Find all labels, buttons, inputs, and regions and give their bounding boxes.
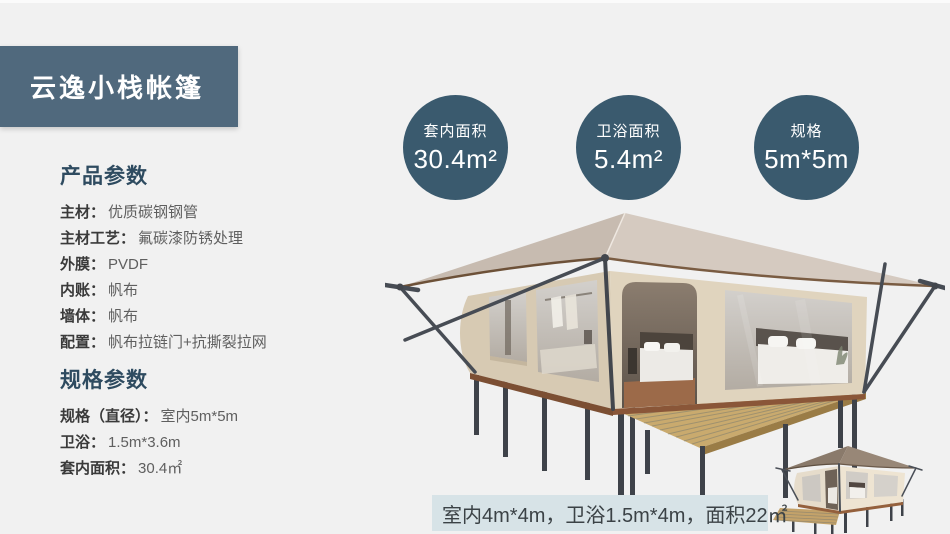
stat-circle-size: 规格 5m*5m <box>754 95 859 200</box>
param-row-material-process: 主材工艺： 氟碳漆防锈处理 <box>60 226 390 252</box>
param-value: 优质碳钢钢管 <box>108 200 198 226</box>
param-value: PVDF <box>108 252 148 278</box>
thumbnail-tent-render <box>770 424 950 534</box>
param-row-wall: 墙体： 帆布 <box>60 304 390 330</box>
product-params-heading: 产品参数 <box>60 160 390 190</box>
param-label: 内账： <box>60 278 105 304</box>
param-label: 主材工艺： <box>60 226 135 252</box>
param-label: 外膜： <box>60 252 105 278</box>
spec-label: 卫浴： <box>60 430 105 456</box>
product-params-section: 产品参数 主材： 优质碳钢钢管 主材工艺： 氟碳漆防锈处理 外膜： PVDF 内… <box>60 160 390 356</box>
spec-row-size: 规格（直径）： 室内5m*5m <box>60 404 390 430</box>
param-value: 氟碳漆防锈处理 <box>138 226 243 252</box>
stat-label: 套内面积 <box>423 120 487 141</box>
thumb-walls <box>794 466 905 514</box>
dimensions-caption: 室内4m*4m，卫浴1.5m*4m，面积22㎡ <box>432 495 768 531</box>
spec-label: 规格（直径）： <box>60 404 158 430</box>
param-label: 墙体： <box>60 304 105 330</box>
top-strip <box>0 0 950 3</box>
stat-value: 5m*5m <box>764 144 849 175</box>
stat-label: 规格 <box>790 120 822 141</box>
param-value: 帆布 <box>108 304 138 330</box>
param-row-inner-tent: 内账： 帆布 <box>60 278 390 304</box>
spec-params-heading: 规格参数 <box>60 364 390 394</box>
spec-value: 30.4㎡ <box>138 456 182 482</box>
spec-row-bathroom: 卫浴： 1.5m*3.6m <box>60 430 390 456</box>
param-row-config: 配置： 帆布拉链门+抗撕裂拉网 <box>60 330 390 356</box>
param-row-material: 主材： 优质碳钢钢管 <box>60 200 390 226</box>
param-value: 帆布拉链门+抗撕裂拉网 <box>108 330 267 356</box>
tent-right-wall <box>610 271 867 409</box>
param-label: 配置： <box>60 330 105 356</box>
stat-circle-bathroom-area: 卫浴面积 5.4m² <box>576 95 681 200</box>
tent-roof <box>400 213 935 287</box>
title-banner: 云逸小栈帐篷 <box>0 46 238 127</box>
param-value: 帆布 <box>108 278 138 304</box>
spec-value: 室内5m*5m <box>161 404 239 430</box>
page-title: 云逸小栈帐篷 <box>30 68 204 105</box>
param-label: 主材： <box>60 200 105 226</box>
spec-params-section: 规格参数 规格（直径）： 室内5m*5m 卫浴： 1.5m*3.6m 套内面积：… <box>60 364 390 482</box>
stat-circle-indoor-area: 套内面积 30.4m² <box>403 95 508 200</box>
spec-value: 1.5m*3.6m <box>108 430 181 456</box>
spec-label: 套内面积： <box>60 456 135 482</box>
stat-label: 卫浴面积 <box>596 120 660 141</box>
dimensions-caption-text: 室内4m*4m，卫浴1.5m*4m，面积22㎡ <box>442 499 788 528</box>
thumb-roof <box>782 446 916 470</box>
spec-row-area: 套内面积： 30.4㎡ <box>60 456 390 482</box>
stat-value: 5.4m² <box>594 144 663 175</box>
param-row-outer-membrane: 外膜： PVDF <box>60 252 390 278</box>
tent-left-wall <box>460 271 613 409</box>
slide: 云逸小栈帐篷 产品参数 主材： 优质碳钢钢管 主材工艺： 氟碳漆防锈处理 外膜：… <box>0 0 950 534</box>
stat-value: 30.4m² <box>414 144 498 175</box>
